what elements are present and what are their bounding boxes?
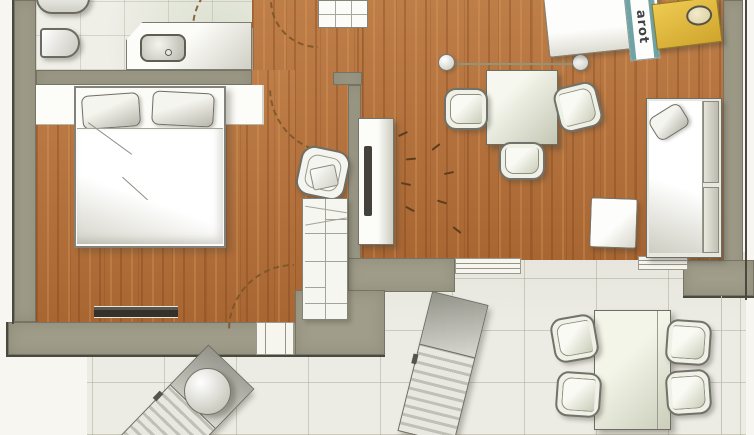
wall-outer-right (723, 0, 743, 272)
terrace-edge-line (721, 296, 722, 435)
closet-shelf-line (305, 233, 347, 234)
dining-chair (499, 142, 545, 180)
bidet (40, 28, 80, 58)
table-edge-line (657, 311, 658, 429)
wall-edge-line (6, 322, 8, 357)
closet-shelf-line (305, 261, 347, 262)
terrace-chair (554, 370, 602, 418)
closet-diagonal-line (305, 206, 347, 214)
chair-seat (671, 375, 706, 410)
closet-shelf-line (305, 287, 325, 288)
closet-divider-line (325, 199, 326, 319)
wall-edge-line (295, 355, 385, 357)
bed-pillow (151, 90, 215, 127)
shelf-closet (302, 198, 348, 320)
chair-seat (561, 377, 596, 412)
terrace-chair (548, 312, 600, 364)
terrace-chair (664, 318, 712, 366)
terrace-chair (664, 368, 712, 416)
kitchenette-counter (651, 0, 722, 50)
bedroom-window (94, 306, 178, 318)
wall-stub (333, 72, 362, 85)
page-margin (0, 355, 87, 435)
living-terrace-door (455, 258, 521, 274)
floor-plan-canvas: arot (0, 0, 754, 435)
chair-seat (450, 94, 482, 124)
wall-edge-line (6, 355, 310, 357)
entry-mat (318, 0, 368, 28)
tv-screen (364, 146, 372, 216)
wall-edge-line (12, 0, 14, 324)
chair-seat (558, 87, 597, 128)
wall-living-terrace (348, 258, 455, 292)
chair-seat (505, 148, 539, 174)
sink-bowl (685, 4, 713, 27)
wall-bathroom-bedroom (36, 70, 252, 85)
dining-chair (444, 88, 488, 130)
sofa-back-cushion (703, 187, 719, 253)
lounger-handle (411, 353, 418, 364)
bed-duvet (77, 128, 223, 244)
sofa-terrace-window (638, 256, 688, 270)
dining-table (486, 70, 558, 145)
wall-pier-right (683, 260, 754, 296)
wall-outer-left (14, 0, 36, 322)
chair-seat (671, 325, 706, 360)
pendant-lamp-rail (450, 63, 580, 65)
pendant-lamp-bulb (438, 54, 455, 71)
plan-label-text: arot (633, 9, 652, 45)
chair-seat (555, 319, 593, 357)
ottoman-side-table (589, 197, 638, 249)
pendant-lamp-bulb (572, 54, 589, 71)
closet-shelf-line (305, 303, 347, 304)
sofa-daybed (646, 98, 722, 258)
basin-drain (165, 49, 172, 56)
wall-edge-line (745, 0, 747, 300)
terrace-table (594, 310, 671, 430)
washbasin (140, 34, 186, 62)
lounger-backrest (420, 292, 487, 358)
toilet (36, 0, 90, 14)
round-side-table (184, 368, 231, 415)
wall-edge-line (683, 296, 754, 298)
sofa-back-cushion (703, 101, 719, 183)
